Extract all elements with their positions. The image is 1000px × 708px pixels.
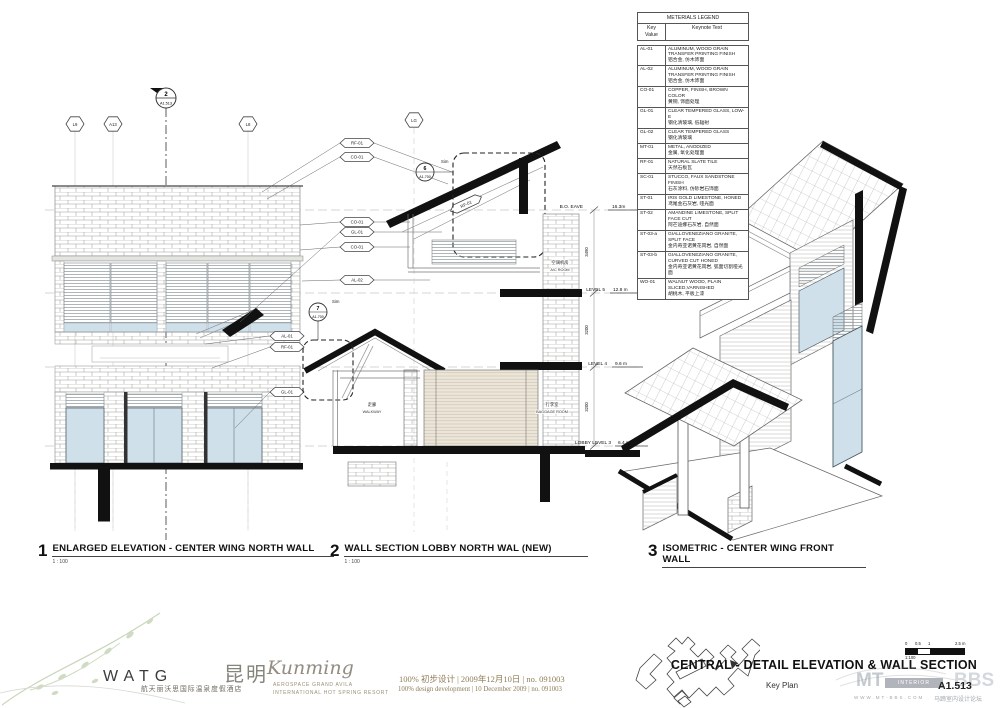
watermark-forum: 马蹄室内设计论坛 bbox=[934, 694, 982, 703]
level-name: LEVEL 4 bbox=[588, 361, 607, 367]
keynote-tag: GL-01 bbox=[281, 390, 294, 395]
legend-row: MT-01METAL, ANODIZED金属, 氧化处理面 bbox=[638, 144, 749, 159]
legend-col-key: Key Value bbox=[638, 23, 666, 40]
level-name: B.O. EAVE bbox=[560, 204, 583, 210]
level-elevation: 12.8 m bbox=[613, 287, 628, 293]
drawing3-titleblock: 3 ISOMETRIC - CENTER WING FRONT WALL bbox=[648, 543, 866, 568]
grid-label: L9 bbox=[73, 122, 78, 127]
keynote-tag: CO-01 bbox=[351, 245, 364, 250]
resort-line1: AEROSPACE GRAND AVILA bbox=[273, 682, 389, 690]
materials-legend-header: METERIALS LEGEND Key Value Keynote Text bbox=[637, 12, 749, 41]
foundation-stub bbox=[98, 470, 110, 522]
level-elevation: 9.6 m bbox=[615, 361, 627, 367]
resort-name: AEROSPACE GRAND AVILA INTERNATIONAL HOT … bbox=[273, 682, 389, 697]
legend-row: GL-01CLEAR TEMPERED GLASS, LOW-E钢化清玻璃, 低… bbox=[638, 108, 749, 129]
detail-number: 6 bbox=[424, 166, 427, 172]
legend-row: GL-02CLEAR TEMPERED GLASS钢化清玻璃 bbox=[638, 129, 749, 144]
room-name-cn: 走廊 bbox=[368, 401, 377, 408]
room-name-en: BAGGAGE ROOM bbox=[536, 410, 568, 414]
drawing-title: ISOMETRIC - CENTER WING FRONT WALL bbox=[662, 543, 866, 568]
watermark-badge: INTERIOR DESIGN bbox=[885, 678, 943, 688]
grid-label: A13 bbox=[109, 122, 117, 127]
dimension: 3200 bbox=[584, 325, 589, 335]
level-elevation: 16.3m bbox=[612, 204, 625, 210]
section-sheet: A1.513 bbox=[160, 102, 172, 106]
keynote-tag: GL-01 bbox=[351, 230, 364, 235]
legend-row: WO-01WALNUT WOOD, PLAIN SLICED,VARNISHED… bbox=[638, 278, 749, 299]
detail-sheet: A1.700 bbox=[419, 175, 430, 179]
scale-bar-graphic bbox=[905, 648, 965, 655]
drawing-scale: 1 : 100 bbox=[344, 559, 588, 565]
drawing-number: 2 bbox=[330, 543, 339, 565]
wall-section-drawing: LG RF-01 6 A1.700 Sim bbox=[303, 113, 648, 532]
watermark-mt: MT bbox=[856, 670, 883, 692]
keynote-tag: RF-01 bbox=[281, 345, 294, 350]
dimension: 3200 bbox=[584, 402, 589, 412]
drawing-sheet: METERIALS LEGEND Key Value Keynote Text … bbox=[0, 0, 1000, 708]
city-name-en: Kunming bbox=[267, 657, 354, 679]
drawing-title: ENLARGED ELEVATION - CENTER WING NORTH W… bbox=[52, 543, 334, 557]
detail-number: 7 bbox=[317, 306, 320, 312]
detail-sheet: A1.700 bbox=[312, 315, 323, 319]
drawing1-titleblock: 1 ENLARGED ELEVATION - CENTER WING NORTH… bbox=[38, 543, 334, 565]
legend-title: METERIALS LEGEND bbox=[638, 13, 749, 24]
grid-label: L8 bbox=[246, 122, 251, 127]
keynote-tag: AL-02 bbox=[351, 278, 363, 283]
legend-row: AL-01ALUMINUM, WOOD GRAIN TRANSFER PRINT… bbox=[638, 45, 749, 66]
level-name: LOBBY LEVEL 3 bbox=[575, 440, 611, 446]
scale-tick: 0 bbox=[905, 641, 907, 646]
scale-tick: 1 bbox=[928, 641, 930, 646]
room-name-cn: 空调机房 bbox=[551, 259, 568, 266]
keynote-tag: CO-01 bbox=[351, 220, 364, 225]
drawing-number: 1 bbox=[38, 543, 47, 565]
materials-legend: METERIALS LEGEND Key Value Keynote Text … bbox=[637, 12, 749, 300]
detail-sim: Sim bbox=[332, 299, 340, 304]
sheet-title: CENTRAL - DETAIL ELEVATION & WALL SECTIO… bbox=[655, 658, 977, 672]
scale-tick: 2.5 m bbox=[955, 641, 965, 646]
keynote-tag: RF-01 bbox=[351, 141, 364, 146]
roof-cut bbox=[386, 141, 561, 228]
phase-line-en: 100% design development | 10 December 20… bbox=[398, 686, 562, 693]
key-plan-label: Key Plan bbox=[766, 681, 798, 690]
drawing-number: 3 bbox=[648, 543, 657, 568]
legend-row: ST-01IRIS GOLD LIMESTONE, HONED鸢尾金石灰岩, 哑… bbox=[638, 195, 749, 210]
ground-cut-line bbox=[50, 463, 303, 470]
drawing-title: WALL SECTION LOBBY NORTH WAL (NEW) bbox=[344, 543, 588, 557]
lower-window-band bbox=[55, 392, 300, 463]
phase-line-cn: 100% 初步设计 | 2009年12月10日 | no. 091003 bbox=[399, 673, 565, 685]
legend-row: ST-03-aGIALLOVENEZIANO GRANITE, SPLIT FA… bbox=[638, 231, 749, 252]
room-name-cn: 行李室 bbox=[546, 401, 560, 408]
upper-window-band bbox=[64, 263, 291, 332]
level-name: LEVEL 5 bbox=[586, 287, 605, 293]
drawing2-titleblock: 2 WALL SECTION LOBBY NORTH WAL (NEW) 1 :… bbox=[330, 543, 588, 565]
legend-row: SC-01STUCCO, FAUX SANDSTONE FINISH石灰涂料, … bbox=[638, 174, 749, 195]
room-name-en: WALKWAY bbox=[363, 410, 382, 414]
city-name-cn: 昆明 bbox=[224, 658, 268, 687]
grid-label: LG bbox=[411, 118, 417, 123]
watermark-url: WWW.MT-BBS.COM bbox=[854, 695, 924, 700]
sheet-number: A1.513 bbox=[938, 680, 972, 692]
resort-line2: INTERNATIONAL HOT SPRING RESORT bbox=[273, 690, 389, 698]
drawing-scale: 1 : 100 bbox=[52, 559, 334, 565]
keynote-tag: AL-01 bbox=[281, 334, 293, 339]
legend-row: AL-02ALUMINUM, WOOD GRAIN TRANSFER PRINT… bbox=[638, 66, 749, 87]
materials-legend-body: AL-01ALUMINUM, WOOD GRAIN TRANSFER PRINT… bbox=[637, 45, 749, 300]
scale-tick: 0.5 bbox=[915, 641, 921, 646]
detail-sim: Sim bbox=[441, 159, 449, 164]
legend-row: RF-01NATURAL SLATE TILE天然石板瓦 bbox=[638, 159, 749, 174]
drawing-canvas: .t4{font-size:4.3px;fill:#222}.t5{font-s… bbox=[0, 0, 1000, 575]
legend-row: CO-01COPPER, FINISH, BROWN COLOR黄铜, 饰面处理 bbox=[638, 87, 749, 108]
legend-col-text: Keynote Text bbox=[666, 23, 749, 40]
keynote-tag: CO-01 bbox=[351, 155, 364, 160]
legend-row: ST-03-bGIALLOVENEZIANO GRANITE, CURVED C… bbox=[638, 252, 749, 279]
room-name-en: A/C ROOM bbox=[550, 268, 569, 272]
dimension: 3490 bbox=[584, 247, 589, 257]
legend-row: ST-02AMANDINE LIMESTONE, SPLIT FACE CUT阿… bbox=[638, 210, 749, 231]
